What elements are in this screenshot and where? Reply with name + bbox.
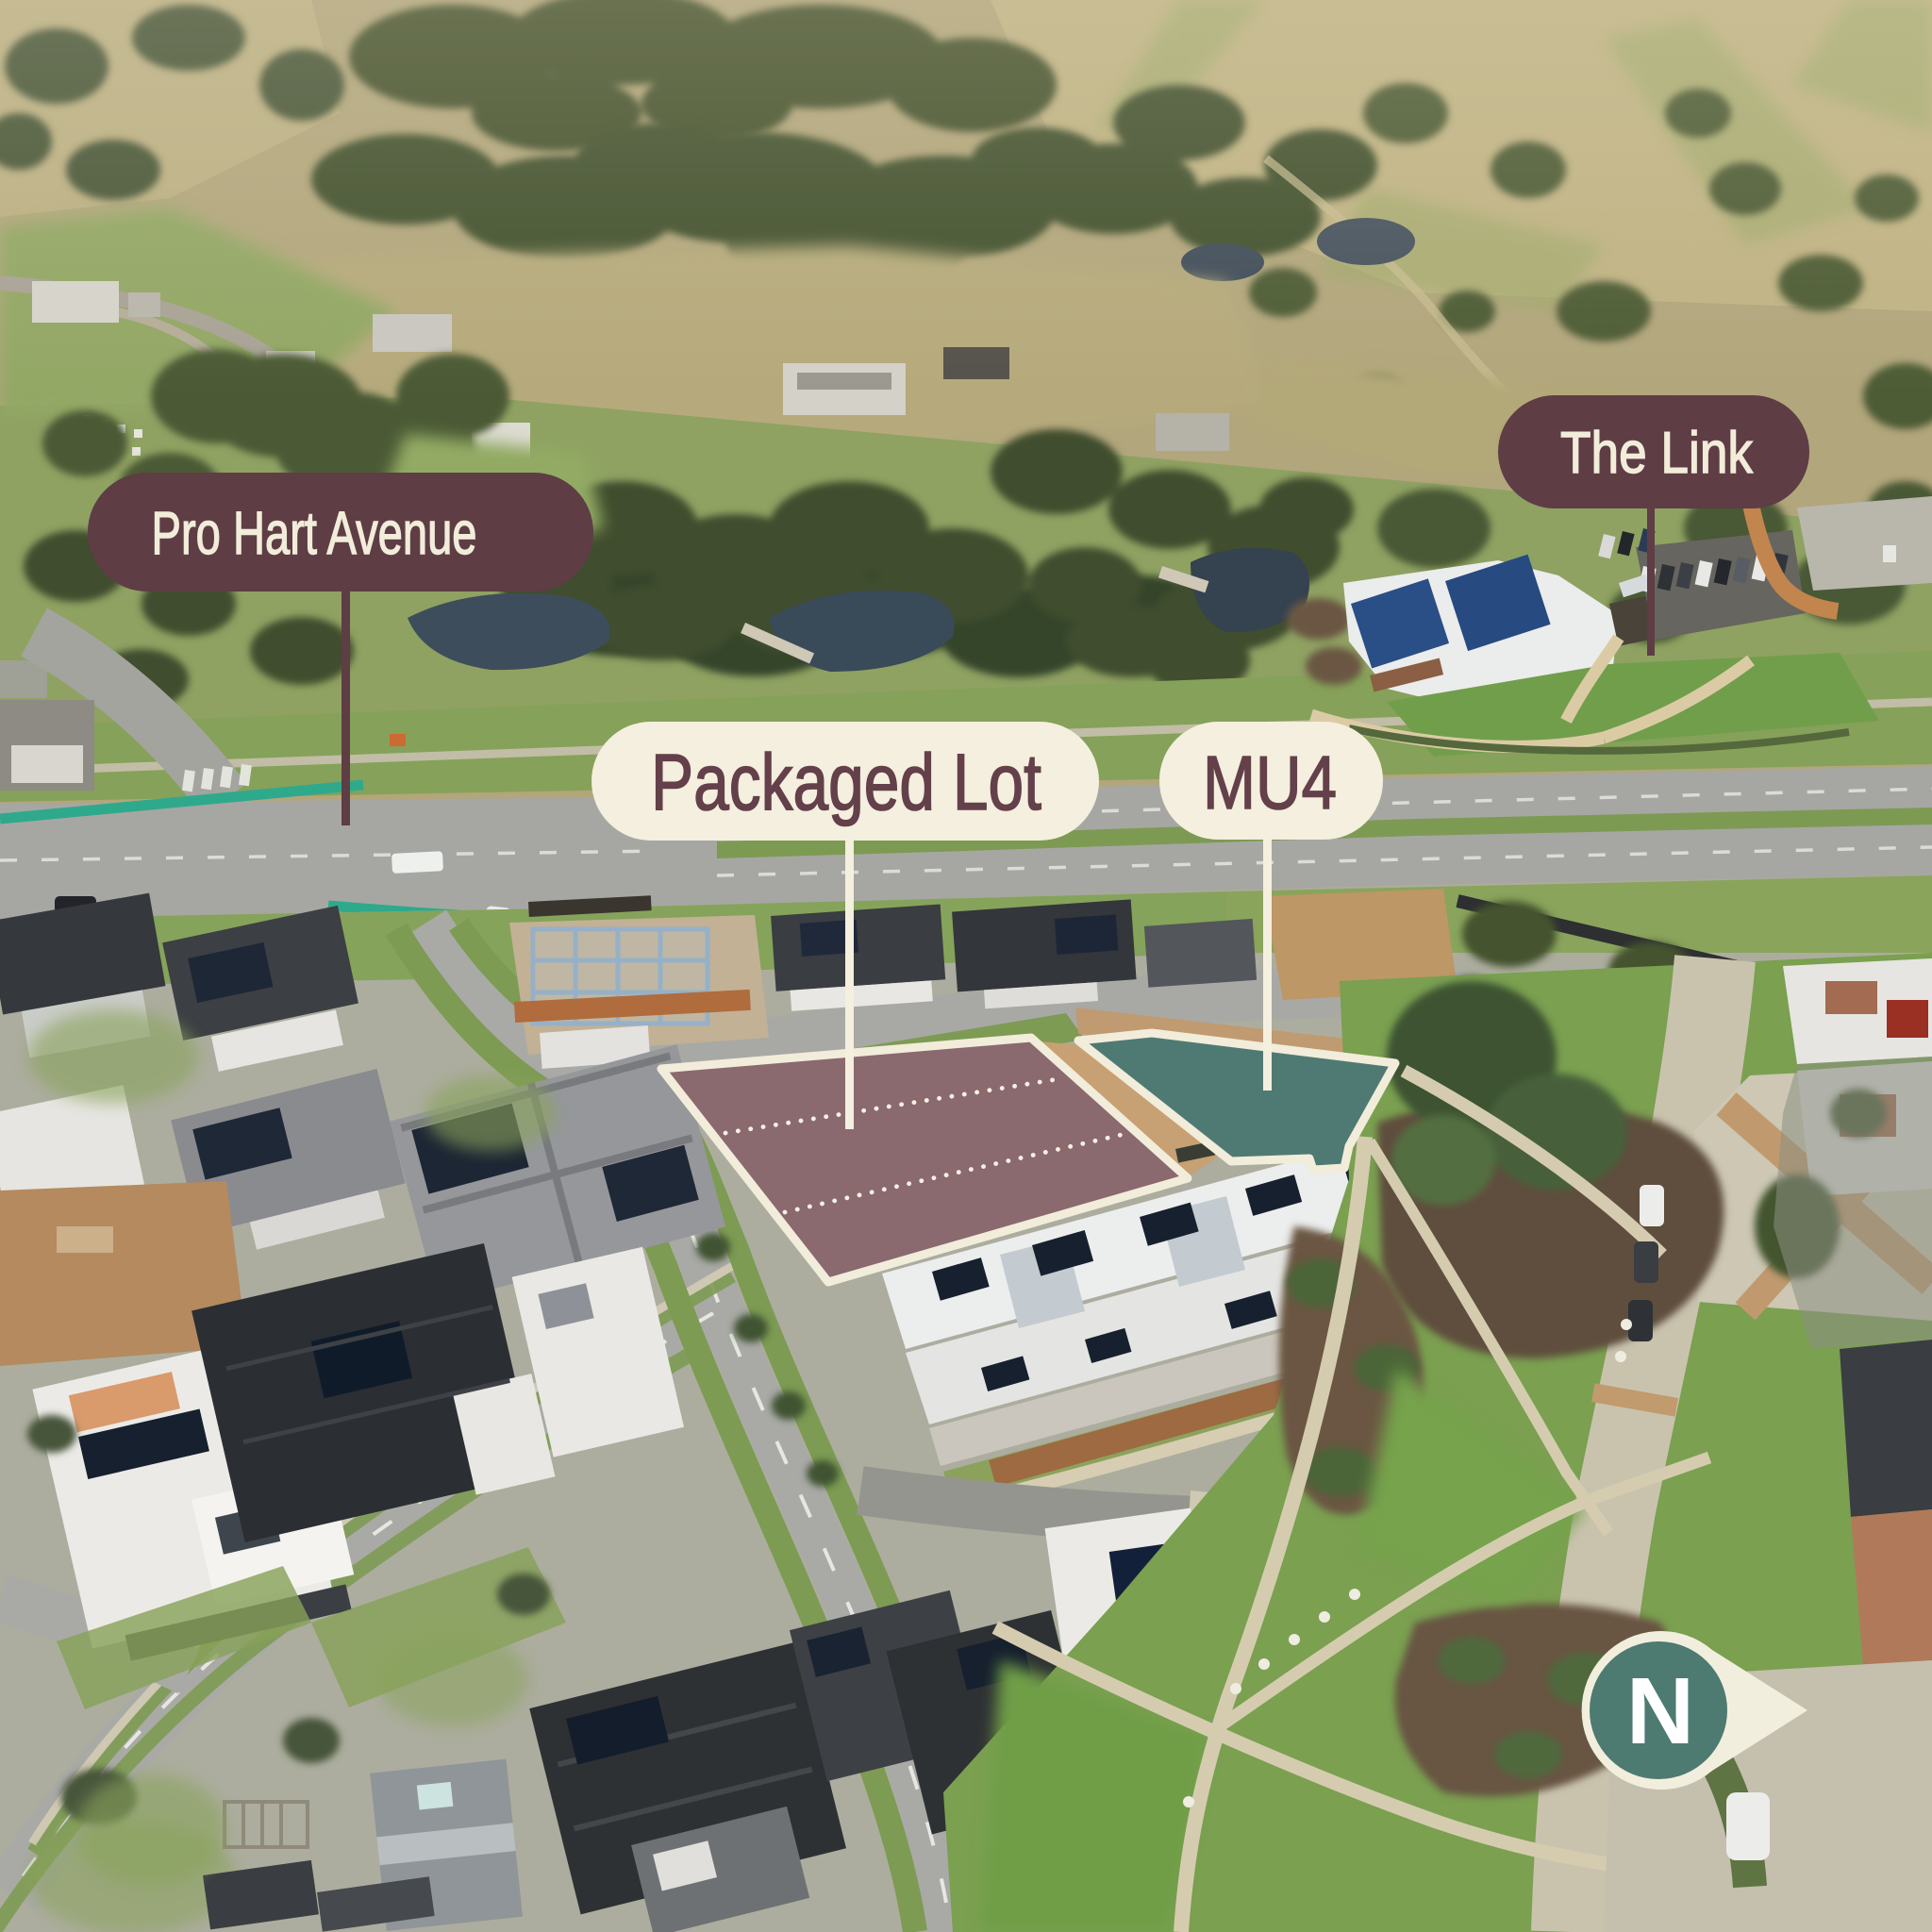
svg-text:MU4: MU4 [1203,741,1337,824]
svg-text:The Link: The Link [1560,421,1754,486]
svg-text:Pro Hart Avenue: Pro Hart Avenue [152,499,477,567]
svg-text:Packaged Lot: Packaged Lot [651,738,1041,826]
svg-text:N: N [1626,1658,1694,1764]
